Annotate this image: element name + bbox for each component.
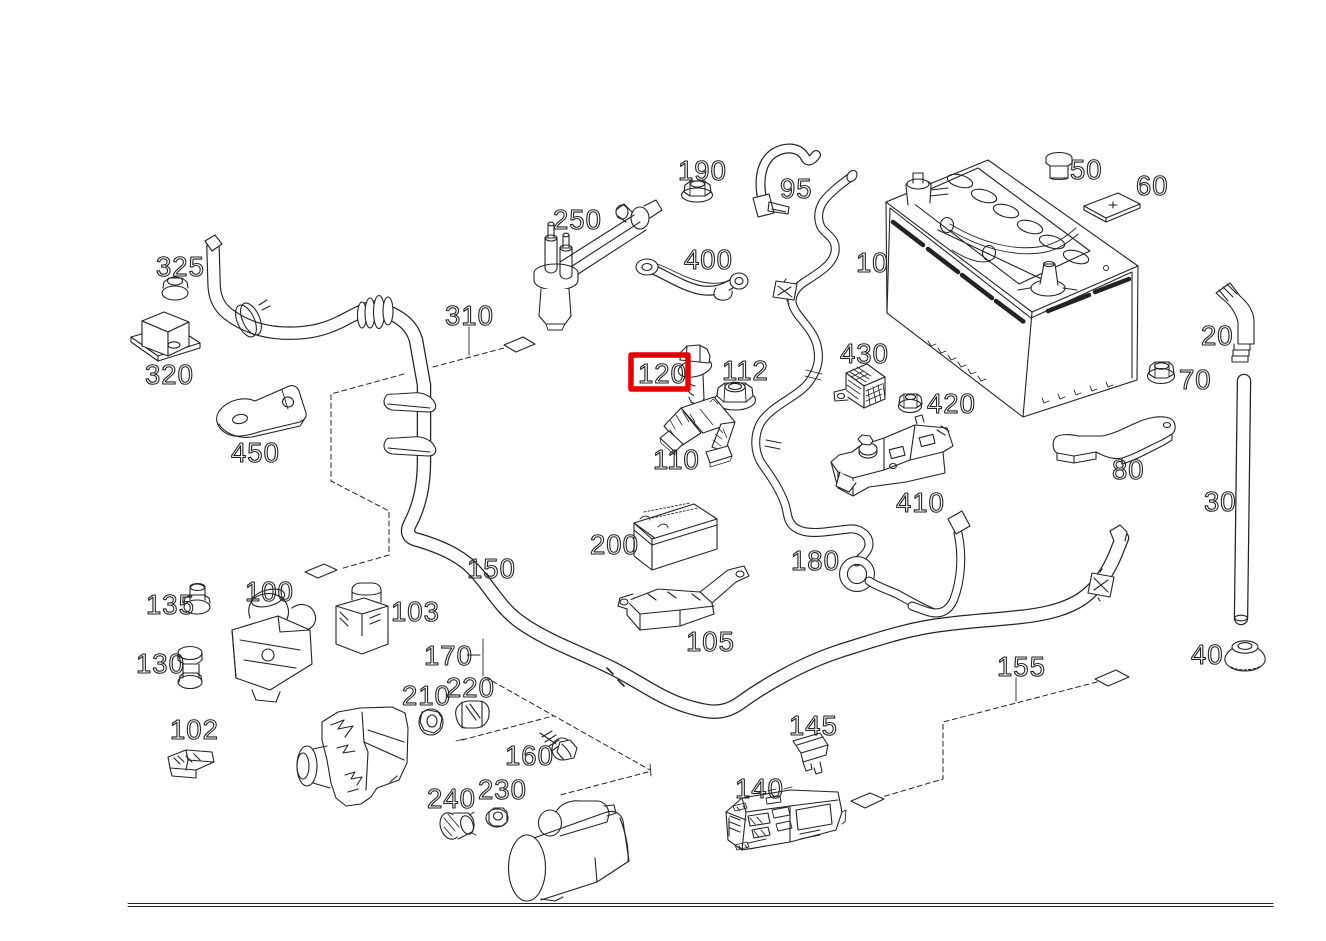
- svg-text:30: 30: [1204, 486, 1237, 517]
- svg-text:400: 400: [684, 244, 733, 275]
- svg-text:210: 210: [402, 680, 451, 711]
- svg-text:200: 200: [590, 529, 639, 560]
- svg-text:450: 450: [231, 437, 280, 468]
- svg-text:130: 130: [136, 648, 185, 679]
- svg-text:100: 100: [245, 576, 294, 607]
- svg-text:430: 430: [840, 338, 889, 369]
- svg-text:240: 240: [427, 783, 476, 814]
- svg-text:155: 155: [997, 651, 1046, 682]
- svg-text:50: 50: [1070, 154, 1103, 185]
- svg-text:180: 180: [791, 545, 840, 576]
- svg-text:140: 140: [735, 773, 784, 804]
- svg-text:310: 310: [445, 300, 494, 331]
- svg-text:135: 135: [146, 589, 195, 620]
- svg-text:320: 320: [145, 359, 194, 390]
- svg-text:325: 325: [156, 251, 205, 282]
- svg-text:160: 160: [505, 740, 554, 771]
- svg-text:420: 420: [927, 388, 976, 419]
- svg-text:95: 95: [780, 173, 813, 204]
- svg-text:190: 190: [678, 155, 727, 186]
- svg-text:80: 80: [1112, 454, 1145, 485]
- svg-text:170: 170: [424, 640, 473, 671]
- svg-text:70: 70: [1179, 364, 1212, 395]
- svg-text:60: 60: [1136, 170, 1169, 201]
- svg-text:112: 112: [722, 355, 769, 386]
- svg-text:145: 145: [789, 710, 838, 741]
- svg-text:250: 250: [553, 204, 602, 235]
- svg-text:103: 103: [391, 596, 440, 627]
- svg-text:110: 110: [653, 444, 700, 475]
- svg-text:410: 410: [896, 487, 945, 518]
- svg-text:150: 150: [467, 553, 516, 584]
- svg-text:230: 230: [478, 774, 527, 805]
- svg-text:40: 40: [1191, 639, 1224, 670]
- svg-text:102: 102: [170, 714, 219, 745]
- svg-text:10: 10: [856, 247, 889, 278]
- svg-text:20: 20: [1201, 320, 1234, 351]
- svg-text:105: 105: [686, 626, 735, 657]
- svg-text:120: 120: [638, 358, 687, 389]
- svg-text:220: 220: [446, 672, 495, 703]
